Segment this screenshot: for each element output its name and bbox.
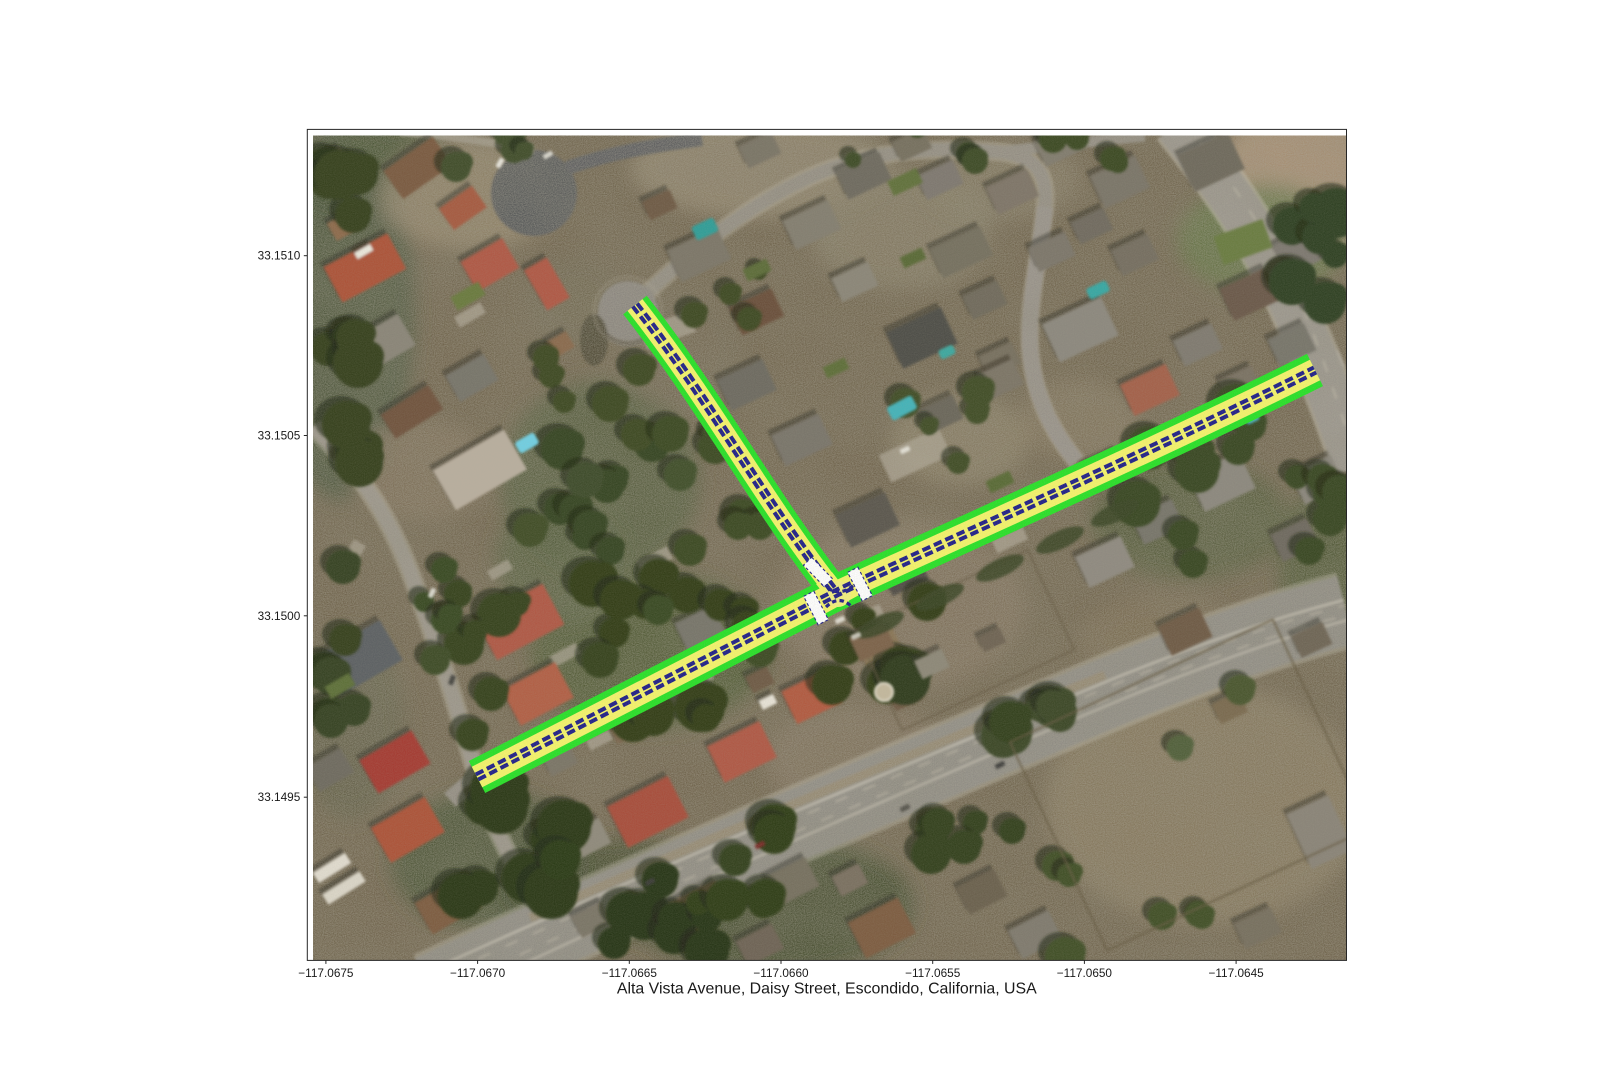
svg-text:−117.0660: −117.0660	[753, 966, 809, 980]
svg-text:−117.0650: −117.0650	[1057, 966, 1113, 980]
svg-text:Alta Vista Avenue, Daisy Stree: Alta Vista Avenue, Daisy Street, Escondi…	[617, 981, 1037, 998]
svg-text:−117.0645: −117.0645	[1208, 966, 1264, 980]
svg-text:−117.0655: −117.0655	[905, 966, 961, 980]
svg-text:−117.0675: −117.0675	[298, 966, 354, 980]
svg-text:−117.0670: −117.0670	[450, 966, 506, 980]
svg-text:33.1505: 33.1505	[258, 429, 301, 443]
svg-text:−117.0665: −117.0665	[602, 966, 658, 980]
svg-text:33.1500: 33.1500	[258, 609, 301, 623]
svg-text:33.1495: 33.1495	[258, 790, 301, 804]
svg-text:33.1510: 33.1510	[258, 249, 301, 263]
